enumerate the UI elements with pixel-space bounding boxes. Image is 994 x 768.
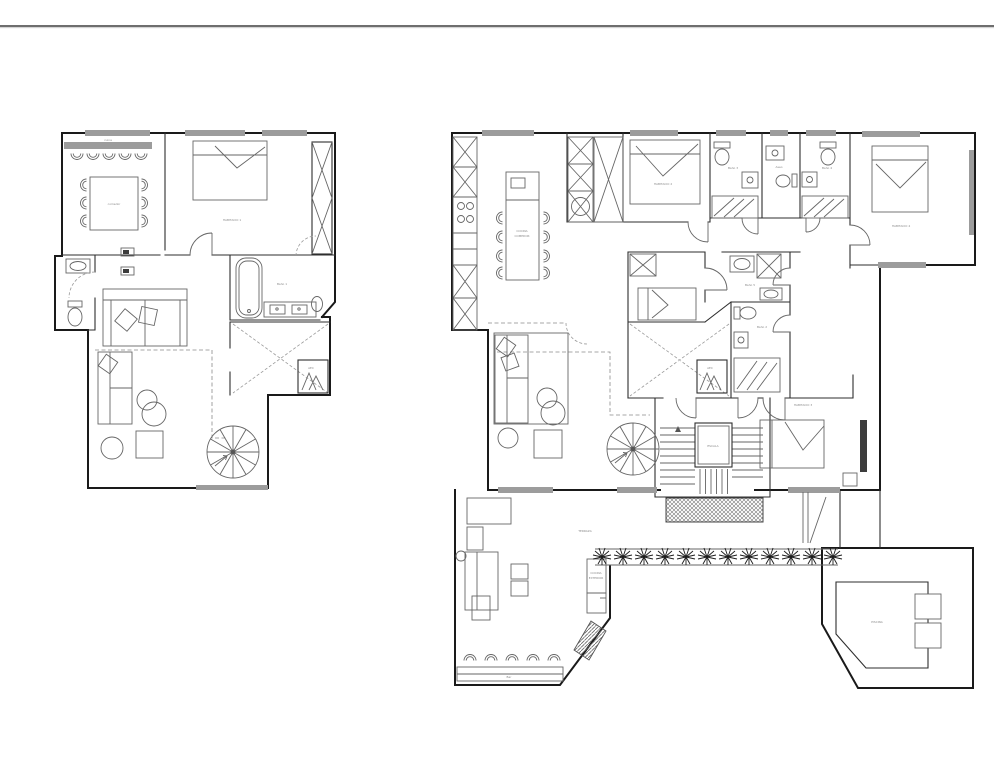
pool-step — [915, 594, 941, 619]
side-table — [136, 431, 163, 458]
room-label-cuina: cuina — [104, 138, 112, 142]
nightstand — [843, 473, 857, 486]
plant-icon — [698, 548, 716, 565]
toilet — [740, 307, 756, 319]
dining-chair-icon — [81, 215, 87, 227]
spiral-staircase-2 — [607, 423, 659, 475]
toilet — [776, 175, 790, 187]
bar-stool-icon — [135, 154, 147, 160]
room-label-bano2: Baño 2 — [757, 325, 767, 329]
floor-plans-canvas: cuina comedor HABITACIO 1 — [0, 0, 994, 768]
closet-label-aec: AEC — [308, 366, 314, 370]
bedroom-3: HABITACIO 3 — [760, 403, 867, 486]
coffee-table — [498, 428, 518, 448]
outdoor-table — [511, 581, 528, 596]
bathroom-4: Baño 4 — [802, 142, 848, 218]
walk-in-closet-2: AEC — [630, 324, 729, 396]
pool-step — [915, 623, 941, 648]
planter — [666, 498, 763, 522]
pool-label: PISCINA — [871, 620, 882, 624]
sink — [766, 146, 784, 160]
island-stool-icon — [497, 267, 503, 279]
right-floor-plan: COCINA COMEDOR HABITACIO 2 Baño 3 Aseo — [452, 130, 975, 688]
bedroom-2: HABITACIO 2 — [630, 140, 700, 204]
island-stool-icon — [544, 267, 550, 279]
dining-chair-icon — [81, 179, 87, 191]
outdoor-table — [511, 564, 528, 579]
room-label-comedor2: COMEDOR — [514, 234, 529, 238]
sofa — [103, 289, 187, 346]
plant-icon — [803, 548, 821, 565]
island-stool-icon — [497, 212, 503, 224]
bathroom-1 — [236, 258, 323, 318]
dining-chair-icon — [142, 215, 148, 227]
hall-wardrobe-column — [568, 137, 623, 222]
bathtub — [239, 261, 259, 315]
room-label-cocina: COCINA — [516, 229, 527, 233]
island-stool-icon — [497, 231, 503, 243]
wardrobe-3 — [860, 420, 867, 472]
terrace-door-glazing — [803, 492, 826, 543]
hedge — [593, 548, 842, 565]
shower — [734, 358, 780, 392]
grill — [574, 621, 606, 660]
sink — [734, 259, 750, 270]
room-label-habitacio3: HABITACIO 3 — [794, 403, 813, 407]
plant-icon — [614, 548, 632, 565]
room-label-bano1: Baño 1 — [277, 282, 287, 286]
room-label-aseo: Aseo — [775, 165, 782, 169]
right-plan-window-bands — [482, 130, 974, 493]
bed-4 — [872, 146, 928, 212]
dining-chair-icon — [142, 179, 148, 191]
closet-label-aec-2: AEC — [707, 366, 713, 370]
room-label-bano4: Baño 4 — [822, 166, 832, 170]
island-stool-icon — [544, 231, 550, 243]
sofa-3 — [495, 335, 528, 423]
small-bedroom — [630, 254, 696, 320]
bar-stool-icon — [119, 154, 131, 160]
sofa-2 — [98, 352, 132, 424]
plant-icon — [656, 548, 674, 565]
living-room-right — [488, 323, 650, 458]
sink — [742, 172, 758, 188]
vanity-counter — [264, 302, 316, 317]
bar-stool-icon — [506, 655, 518, 661]
bar-stool-icon — [527, 655, 539, 661]
bar-stool-icon — [464, 655, 476, 661]
living-room-left — [95, 289, 259, 478]
left-plan-walls — [55, 133, 335, 488]
bar-label: Bar — [507, 675, 513, 679]
island-stool-icon — [544, 250, 550, 262]
bathroom-2: Baño 2 — [734, 307, 780, 392]
wc-left — [66, 259, 90, 326]
rug — [494, 333, 568, 424]
room-label-bano3: Baño 3 — [728, 166, 738, 170]
kitchen-island: COCINA COMEDOR — [497, 172, 550, 280]
bar-counter — [71, 154, 147, 160]
toilet — [68, 308, 82, 326]
wardrobe-1 — [312, 142, 332, 254]
plant-icon — [761, 548, 779, 565]
stair-direction-arrow — [675, 426, 681, 432]
coffee-table — [541, 401, 565, 425]
bar-stool-icon — [548, 655, 560, 661]
bar-stool-icon — [485, 655, 497, 661]
dining-chair-icon — [81, 197, 87, 209]
room-label-comedor: comedor — [108, 202, 122, 206]
kitchen-cabinets — [453, 137, 477, 330]
terrace-label: TERRAZA — [577, 529, 591, 533]
aec-closet-2 — [697, 360, 727, 393]
sink — [734, 332, 748, 348]
left-floor-plan: cuina comedor HABITACIO 1 — [55, 130, 335, 490]
room-label-habitacio2: HABITACIO 2 — [654, 182, 673, 186]
aseo: Aseo — [766, 146, 797, 187]
outdoor-sofa — [456, 498, 511, 620]
bathroom-5: Baño 5 — [730, 254, 782, 300]
left-plan-window-bands — [64, 130, 307, 490]
dining-chair-icon — [142, 197, 148, 209]
side-table-2 — [534, 430, 562, 458]
room-label-habitacio1: HABITACIO 1 — [223, 218, 242, 222]
room-label-habitacio4: HABITACIO 4 — [892, 224, 911, 228]
island-stool-icon — [544, 212, 550, 224]
sink — [802, 172, 817, 187]
outdoor-kitchen: COCINA EXTERIOR — [587, 559, 606, 613]
bar-stool-icon — [71, 154, 83, 160]
toilet — [715, 149, 729, 165]
toilet — [821, 149, 835, 165]
right-plan-door-arcs — [566, 218, 870, 420]
terrace: TERRAZA COCINA EXTERIOR — [456, 492, 842, 681]
coffee-table — [537, 388, 557, 408]
plant-icon — [719, 548, 737, 565]
plant-icon — [740, 548, 758, 565]
room-label-bano5: Baño 5 — [745, 283, 755, 287]
stove — [453, 197, 477, 233]
bathroom-3: Baño 3 — [712, 142, 758, 218]
plant-icon — [677, 548, 695, 565]
plant-icon — [824, 548, 842, 565]
left-plan-door-arcs — [69, 233, 316, 298]
bar-stool-icon — [103, 154, 115, 160]
bed-2 — [630, 140, 700, 204]
top-rule-divider — [0, 25, 994, 28]
coffee-table — [137, 390, 157, 410]
outdoor-bar: Bar — [457, 655, 563, 682]
outdoor-kitchen-label-2: EXTERIOR — [589, 576, 604, 580]
pool-area: PISCINA — [836, 582, 941, 668]
bed-1 — [193, 141, 267, 200]
staircase: ESCALA — [607, 423, 763, 494]
toilet — [312, 297, 323, 312]
coffee-table — [142, 402, 166, 426]
void-outline — [95, 350, 228, 438]
plant-icon — [635, 548, 653, 565]
plant-icon — [782, 548, 800, 565]
stairs-label-escala: ESCALA — [707, 444, 718, 448]
coffee-table — [101, 437, 123, 459]
spiral-staircase — [207, 426, 259, 478]
island-stool-icon — [497, 250, 503, 262]
walk-in-closet: AEC — [233, 324, 328, 393]
electrical-panels — [121, 248, 134, 275]
plant-icon — [593, 548, 611, 565]
pool — [836, 582, 928, 668]
outdoor-kitchen-label-1: COCINA — [590, 571, 601, 575]
bar-stool-icon — [87, 154, 99, 160]
right-plan-walls — [452, 133, 975, 688]
bedroom-4: HABITACIO 4 — [872, 146, 928, 228]
